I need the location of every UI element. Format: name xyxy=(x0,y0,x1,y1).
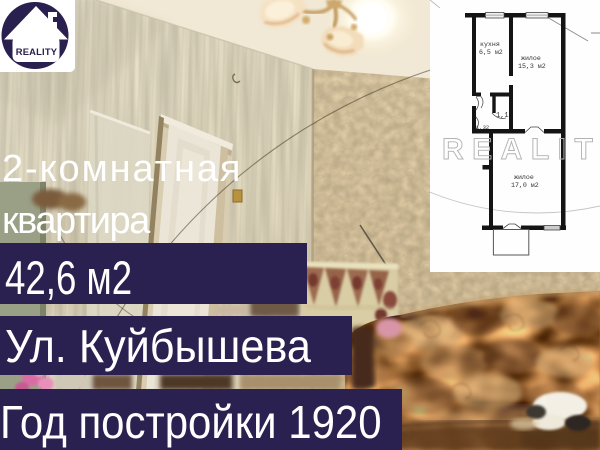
svg-text:15,3 м2: 15,3 м2 xyxy=(518,63,546,70)
svg-text:кухня: кухня xyxy=(480,41,500,48)
svg-text:1,1: 1,1 xyxy=(496,112,509,120)
svg-text:REALITY: REALITY xyxy=(16,46,58,57)
svg-text:6,5 м2: 6,5 м2 xyxy=(479,49,503,56)
svg-text:REALITY: REALITY xyxy=(442,133,600,166)
svg-text:1,32: 1,32 xyxy=(476,124,489,131)
svg-text:жилое: жилое xyxy=(521,55,541,62)
svg-text:жилое: жилое xyxy=(514,174,534,181)
svg-text:17,0 м2: 17,0 м2 xyxy=(511,182,539,189)
